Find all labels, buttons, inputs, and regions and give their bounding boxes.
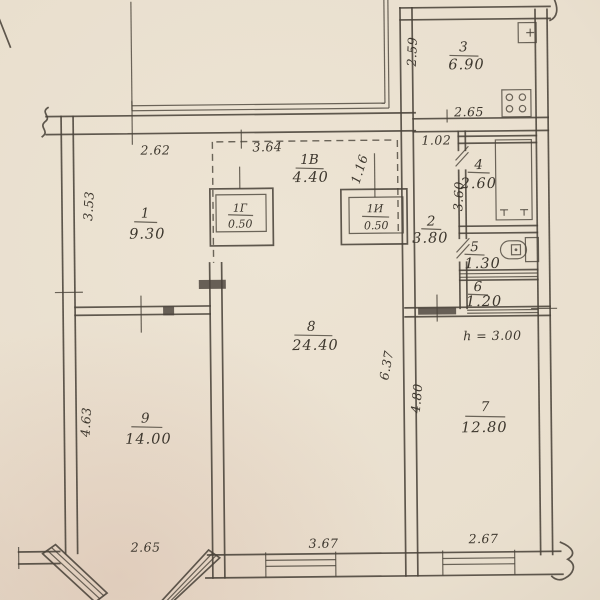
dimension: 1.02 [421,132,451,147]
dimension: 1.16 [348,152,371,185]
photo-edge-artifact [0,13,10,47]
room-number: 4 [473,157,483,173]
room-number: 5 [470,239,479,255]
room3-label: 3 6.90 [448,39,485,73]
divider-wall-right [396,7,459,576]
dimension: 3.60 [450,181,466,211]
room-area: 12.80 [461,420,508,436]
wall-break-mark [550,0,557,20]
room-number: 1Г [233,202,248,215]
dimension: 4.80 [408,383,426,415]
dimension: 2.65 [130,539,161,554]
room-area: 14.00 [125,431,172,447]
ceiling-height-note: h = 3.00 [463,328,521,344]
dimension: 3.53 [80,191,97,222]
closet-left-label: 1Г 0.50 [228,201,254,230]
door-threshold-marker [199,280,226,289]
room-area: 0.50 [364,219,389,232]
room6-label: 6 1.20 [466,279,503,310]
room-area: 4.40 [291,170,328,186]
dimension: 2.67 [468,531,499,546]
dimension: 3.64 [252,139,282,154]
room-number: 1В [300,152,319,168]
dimension: 3.67 [309,536,339,551]
toilet-icon [500,238,538,262]
bathtub-icon [495,140,532,220]
door-threshold-marker [163,306,174,315]
bottom-wall [19,539,574,600]
room-number: 3 [459,39,468,55]
room9-label: 9 14.00 [125,410,172,447]
bay-window-right [161,550,221,600]
wall-room1-room9 [75,295,210,333]
dimension: 2.59 [404,36,420,67]
window [266,552,336,578]
room-area: 6.90 [448,57,484,73]
room-area: 3.80 [412,230,448,246]
divider-wall-left [197,142,229,578]
room-number: 7 [481,399,490,415]
room-number: 1И [367,202,384,215]
room5-label: 5 1.30 [464,239,501,272]
room-number: 6 [473,279,482,295]
room-area: 0.50 [228,217,253,230]
window [443,550,515,576]
stove-icon [502,90,531,117]
room-area: 9.30 [129,226,165,242]
scanned-floor-plan-photo: 1 9.30 1В 4.40 1Г 0.50 1И 0.50 3 6.90 2 … [0,0,600,600]
floor-plan-drawing: 1 9.30 1В 4.40 1Г 0.50 1И 0.50 3 6.90 2 … [0,0,600,600]
corridor-label: 1В 4.40 [291,152,329,186]
room8-label: 8 24.40 [291,319,339,354]
dimension: 2.62 [139,142,170,157]
room1-label: 1 9.30 [129,205,166,242]
room2-label: 2 3.80 [412,213,449,246]
wall-break-mark [42,108,48,137]
dimension: 6.37 [376,349,396,381]
room-area: 1.20 [466,294,502,310]
sink-icon [518,23,536,43]
corridor-boundary [216,140,396,142]
room-area: 24.40 [291,338,339,354]
room-number: 9 [141,411,150,427]
room-area: 1.30 [464,256,500,272]
dimension: 4.63 [77,407,94,439]
room-number: 2 [426,214,436,230]
room-number: 8 [307,319,316,335]
dimension: 2.65 [453,104,484,119]
room7-label: 7 12.80 [461,399,508,436]
room-number: 1 [141,206,150,222]
closet-right-label: 1И 0.50 [362,202,389,232]
